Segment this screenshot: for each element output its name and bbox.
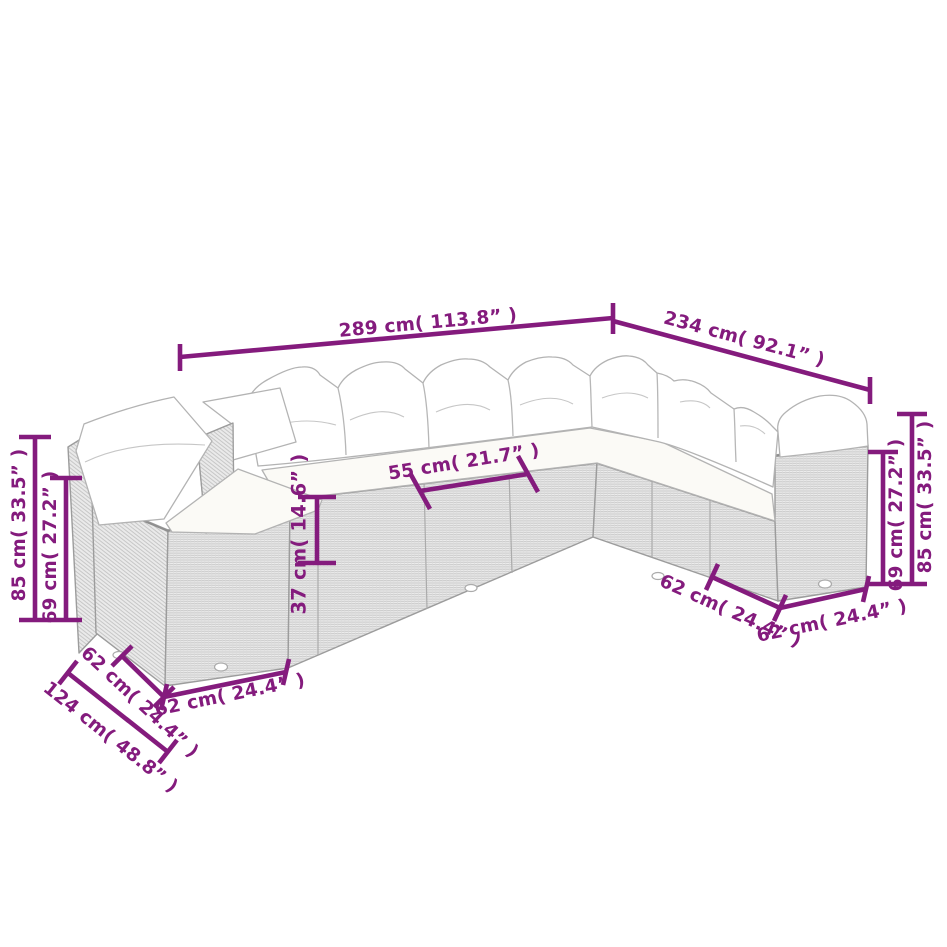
dim-label-arm-height-left: 69 cm( 27.2” )	[42, 471, 61, 624]
sofa-illustration	[0, 0, 947, 947]
dim-label-seat-height: 37 cm( 14.6” )	[289, 454, 309, 615]
dim-label-arm-height-right: 69 cm( 27.2” )	[888, 439, 907, 592]
dimension-diagram: 289 cm( 113.8” ) 234 cm( 92.1” ) 85 cm( …	[0, 0, 947, 947]
dim-label-back-height-left: 85 cm( 33.5” )	[11, 449, 30, 602]
dim-label-back-height-right: 85 cm( 33.5” )	[917, 421, 936, 574]
